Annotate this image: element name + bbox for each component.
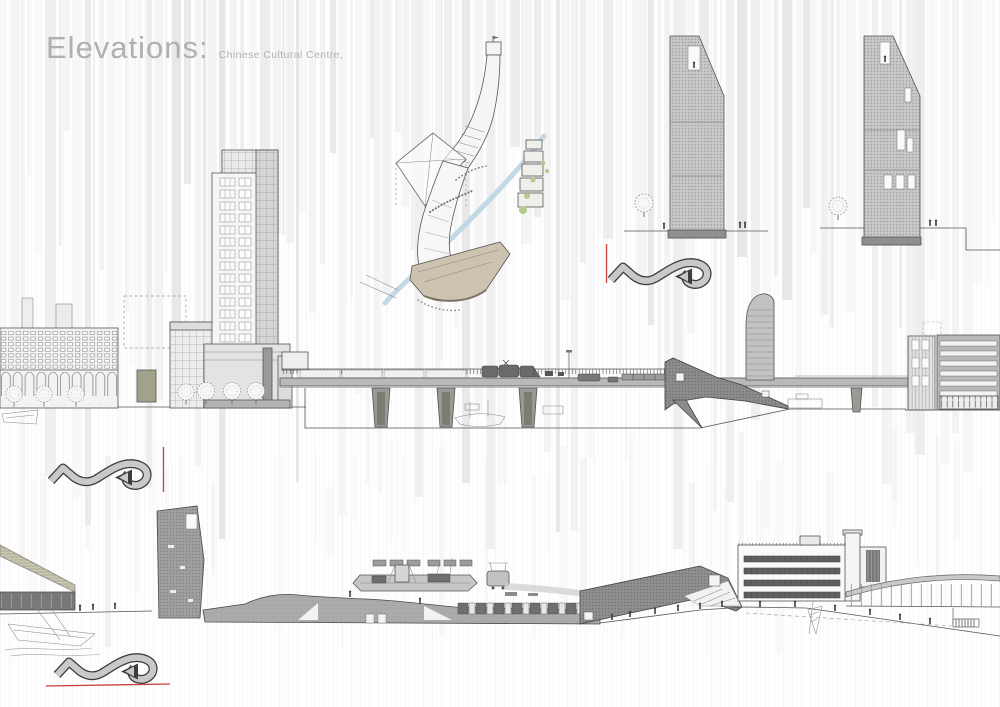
promenade-slope xyxy=(600,607,1000,636)
long-building xyxy=(203,591,600,624)
train xyxy=(482,360,540,377)
floating-deck xyxy=(373,560,472,566)
olive-block xyxy=(137,370,156,402)
red-marker-line-horizontal xyxy=(46,684,170,686)
axonometric-concept-sketch xyxy=(360,36,549,311)
elevation-drawing xyxy=(0,0,1000,707)
curved-arrow-icon xyxy=(51,464,147,486)
street-elevation-lower xyxy=(0,506,1000,656)
slat-building xyxy=(908,322,941,410)
tower-elevation-left xyxy=(624,36,768,238)
lower-dark-tower xyxy=(157,506,204,618)
page-title: Elevations: xyxy=(46,30,209,66)
hall-building xyxy=(0,545,152,656)
tree xyxy=(635,194,653,217)
tree xyxy=(829,197,847,220)
sail-tower xyxy=(746,294,774,380)
presentation-board: Elevations: Chinese Cultural Centre, xyxy=(0,0,1000,707)
striped-marker xyxy=(953,619,979,627)
page-subtitle: Chinese Cultural Centre, xyxy=(219,49,344,61)
title-block: Elevations: Chinese Cultural Centre, xyxy=(46,30,343,66)
classical-building xyxy=(0,298,118,408)
curved-arrow-icon xyxy=(611,263,707,285)
sailboat-sketch xyxy=(808,602,822,634)
tower-elevation-right xyxy=(820,36,1000,250)
curved-arrow-icon xyxy=(57,658,153,680)
